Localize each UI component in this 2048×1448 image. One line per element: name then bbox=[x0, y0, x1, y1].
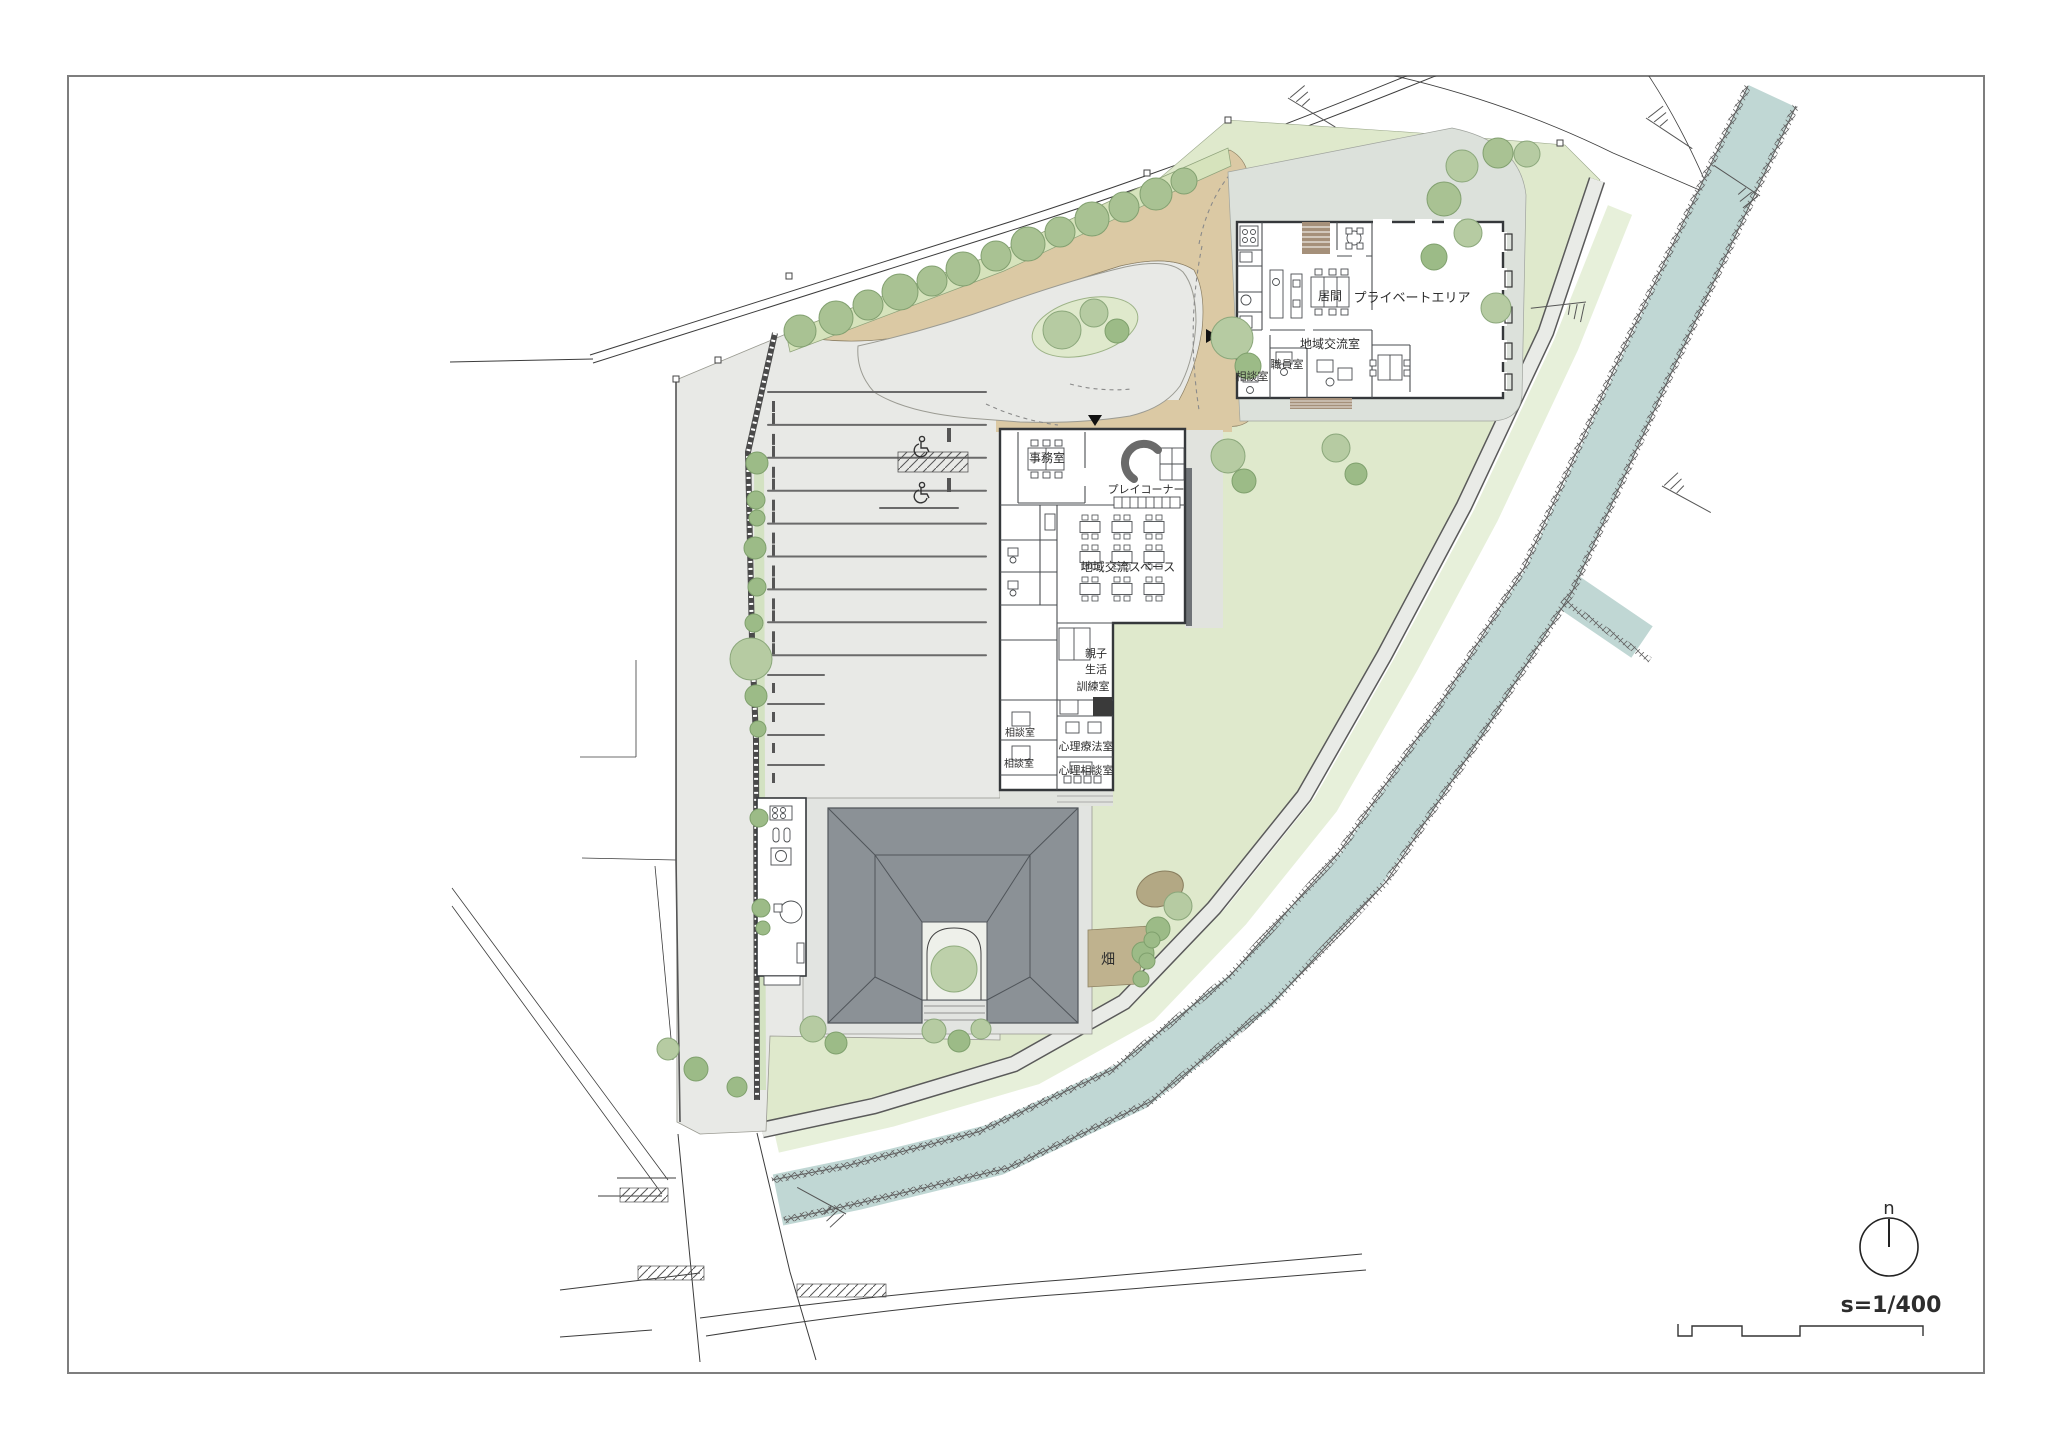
tree bbox=[1211, 439, 1245, 473]
tree bbox=[1075, 202, 1109, 236]
site-plan-page: 事務室 プレイコーナー 地域交流スペース 親子 生活 訓練室 心理療法室 心理相… bbox=[0, 0, 2048, 1448]
wheel-stop bbox=[772, 401, 775, 412]
tree bbox=[1171, 168, 1197, 194]
tree bbox=[819, 301, 853, 335]
tree bbox=[727, 1077, 747, 1097]
table bbox=[1112, 584, 1132, 595]
chair bbox=[1156, 515, 1162, 520]
tree bbox=[750, 809, 768, 827]
tree bbox=[784, 315, 816, 347]
chair bbox=[1156, 534, 1162, 539]
chair bbox=[1082, 515, 1088, 520]
label-living: 居間 bbox=[1318, 289, 1342, 303]
scale-bar bbox=[1678, 1324, 1923, 1336]
tree bbox=[748, 578, 766, 596]
label-training-2: 生活 bbox=[1085, 662, 1107, 676]
chair bbox=[1082, 577, 1088, 582]
tree bbox=[1345, 463, 1367, 485]
tree bbox=[684, 1057, 708, 1081]
chair bbox=[1092, 577, 1098, 582]
tree bbox=[1164, 892, 1192, 920]
wheel-stop bbox=[772, 773, 775, 783]
chair bbox=[1114, 596, 1120, 601]
chair bbox=[1146, 596, 1152, 601]
tree bbox=[917, 266, 947, 296]
tree bbox=[1144, 932, 1160, 948]
wheel-stop bbox=[772, 434, 775, 445]
tree bbox=[1446, 150, 1478, 182]
service-yard bbox=[757, 798, 806, 985]
label-community-room: 地域交流室 bbox=[1300, 336, 1360, 351]
chair bbox=[1146, 515, 1152, 520]
wheel-stop bbox=[772, 598, 775, 609]
tree bbox=[1133, 971, 1149, 987]
tree bbox=[1421, 244, 1447, 270]
tree bbox=[882, 274, 918, 310]
tree bbox=[1427, 182, 1461, 216]
label-office: 事務室 bbox=[1029, 450, 1065, 465]
wheel-stop bbox=[772, 643, 775, 654]
tree bbox=[1481, 293, 1511, 323]
wheel-stop bbox=[772, 467, 775, 478]
label-play-corner: プレイコーナー bbox=[1108, 483, 1185, 496]
tree bbox=[971, 1019, 991, 1039]
label-training-1: 親子 bbox=[1085, 647, 1107, 660]
label-staff-room: 職員室 bbox=[1271, 357, 1304, 371]
label-field: 畑 bbox=[1101, 952, 1115, 968]
chair bbox=[1156, 577, 1162, 582]
tree bbox=[946, 252, 980, 286]
tree bbox=[1322, 434, 1350, 462]
community-space-tables bbox=[1080, 515, 1164, 601]
wheel-stop bbox=[772, 566, 775, 577]
wheel-stop bbox=[772, 500, 775, 511]
label-consult-a: 相談室 bbox=[1005, 726, 1035, 739]
tree bbox=[749, 510, 765, 526]
wheel-stop bbox=[772, 743, 775, 753]
chair bbox=[1146, 577, 1152, 582]
wheel-stop bbox=[772, 578, 775, 589]
chair bbox=[1092, 515, 1098, 520]
chair bbox=[1124, 534, 1130, 539]
chair bbox=[1156, 545, 1162, 550]
chair bbox=[1124, 577, 1130, 582]
chair bbox=[1124, 596, 1130, 601]
tree bbox=[756, 921, 770, 935]
table bbox=[1080, 522, 1100, 533]
chair bbox=[1082, 596, 1088, 601]
tree bbox=[1105, 319, 1129, 343]
wheel-stop bbox=[772, 631, 775, 642]
tree bbox=[746, 452, 768, 474]
tree bbox=[981, 241, 1011, 271]
tree bbox=[1045, 217, 1075, 247]
table bbox=[1112, 522, 1132, 533]
chair bbox=[1082, 545, 1088, 550]
tree bbox=[1454, 219, 1482, 247]
chair bbox=[1092, 545, 1098, 550]
tree bbox=[1483, 138, 1513, 168]
scale-text: s=1/400 bbox=[1841, 1293, 1942, 1318]
tree bbox=[745, 685, 767, 707]
table bbox=[1144, 522, 1164, 533]
label-consult-c: 相談室 bbox=[1236, 369, 1269, 383]
tree bbox=[752, 899, 770, 917]
chair bbox=[1156, 596, 1162, 601]
label-psych-consult: 心理相談室 bbox=[1059, 763, 1114, 777]
site-plan-svg: 事務室 プレイコーナー 地域交流スペース 親子 生活 訓練室 心理療法室 心理相… bbox=[0, 0, 2048, 1448]
wheel-stop bbox=[772, 712, 775, 722]
label-community-space: 地域交流スペース bbox=[1081, 559, 1176, 574]
tree bbox=[1139, 953, 1155, 969]
table bbox=[1144, 584, 1164, 595]
label-private-area: プライベートエリア bbox=[1353, 291, 1470, 306]
chair bbox=[1114, 534, 1120, 539]
tree bbox=[1011, 227, 1045, 261]
chair bbox=[1092, 534, 1098, 539]
chair bbox=[1114, 545, 1120, 550]
chair bbox=[1146, 534, 1152, 539]
chair bbox=[1114, 577, 1120, 582]
chair bbox=[1082, 534, 1088, 539]
bath-unit bbox=[1093, 697, 1112, 716]
north-letter: n bbox=[1883, 1198, 1894, 1219]
label-training-3: 訓練室 bbox=[1077, 679, 1110, 693]
chair bbox=[1092, 596, 1098, 601]
tree bbox=[1080, 299, 1108, 327]
north-arrow bbox=[1860, 1218, 1918, 1276]
wheel-stop bbox=[772, 446, 775, 457]
tree bbox=[747, 491, 765, 509]
tree bbox=[1043, 311, 1081, 349]
chair bbox=[1124, 515, 1130, 520]
wheel-stop bbox=[772, 479, 775, 490]
label-consult-b: 相談室 bbox=[1004, 757, 1034, 770]
tree bbox=[1140, 178, 1172, 210]
wheel-stop bbox=[772, 683, 775, 693]
wheel-stop bbox=[772, 413, 775, 424]
tree bbox=[948, 1030, 970, 1052]
label-psychotherapy: 心理療法室 bbox=[1059, 739, 1114, 753]
wheel-stop bbox=[772, 533, 775, 544]
north-building bbox=[1237, 219, 1512, 409]
wheel-stop bbox=[772, 545, 775, 556]
tree bbox=[744, 537, 766, 559]
tree bbox=[750, 721, 766, 737]
tree bbox=[825, 1032, 847, 1054]
tree bbox=[1109, 192, 1139, 222]
chair bbox=[1124, 545, 1130, 550]
tree bbox=[853, 290, 883, 320]
tree bbox=[745, 614, 763, 632]
tree bbox=[800, 1016, 826, 1042]
chair bbox=[1114, 515, 1120, 520]
tree bbox=[1232, 469, 1256, 493]
wheel-stop bbox=[772, 610, 775, 621]
tree bbox=[657, 1038, 679, 1060]
chair bbox=[1146, 545, 1152, 550]
table bbox=[1080, 584, 1100, 595]
wheel-stop bbox=[772, 512, 775, 523]
tree bbox=[730, 638, 772, 680]
tree bbox=[931, 946, 977, 992]
tree bbox=[922, 1019, 946, 1043]
tree bbox=[1514, 141, 1540, 167]
